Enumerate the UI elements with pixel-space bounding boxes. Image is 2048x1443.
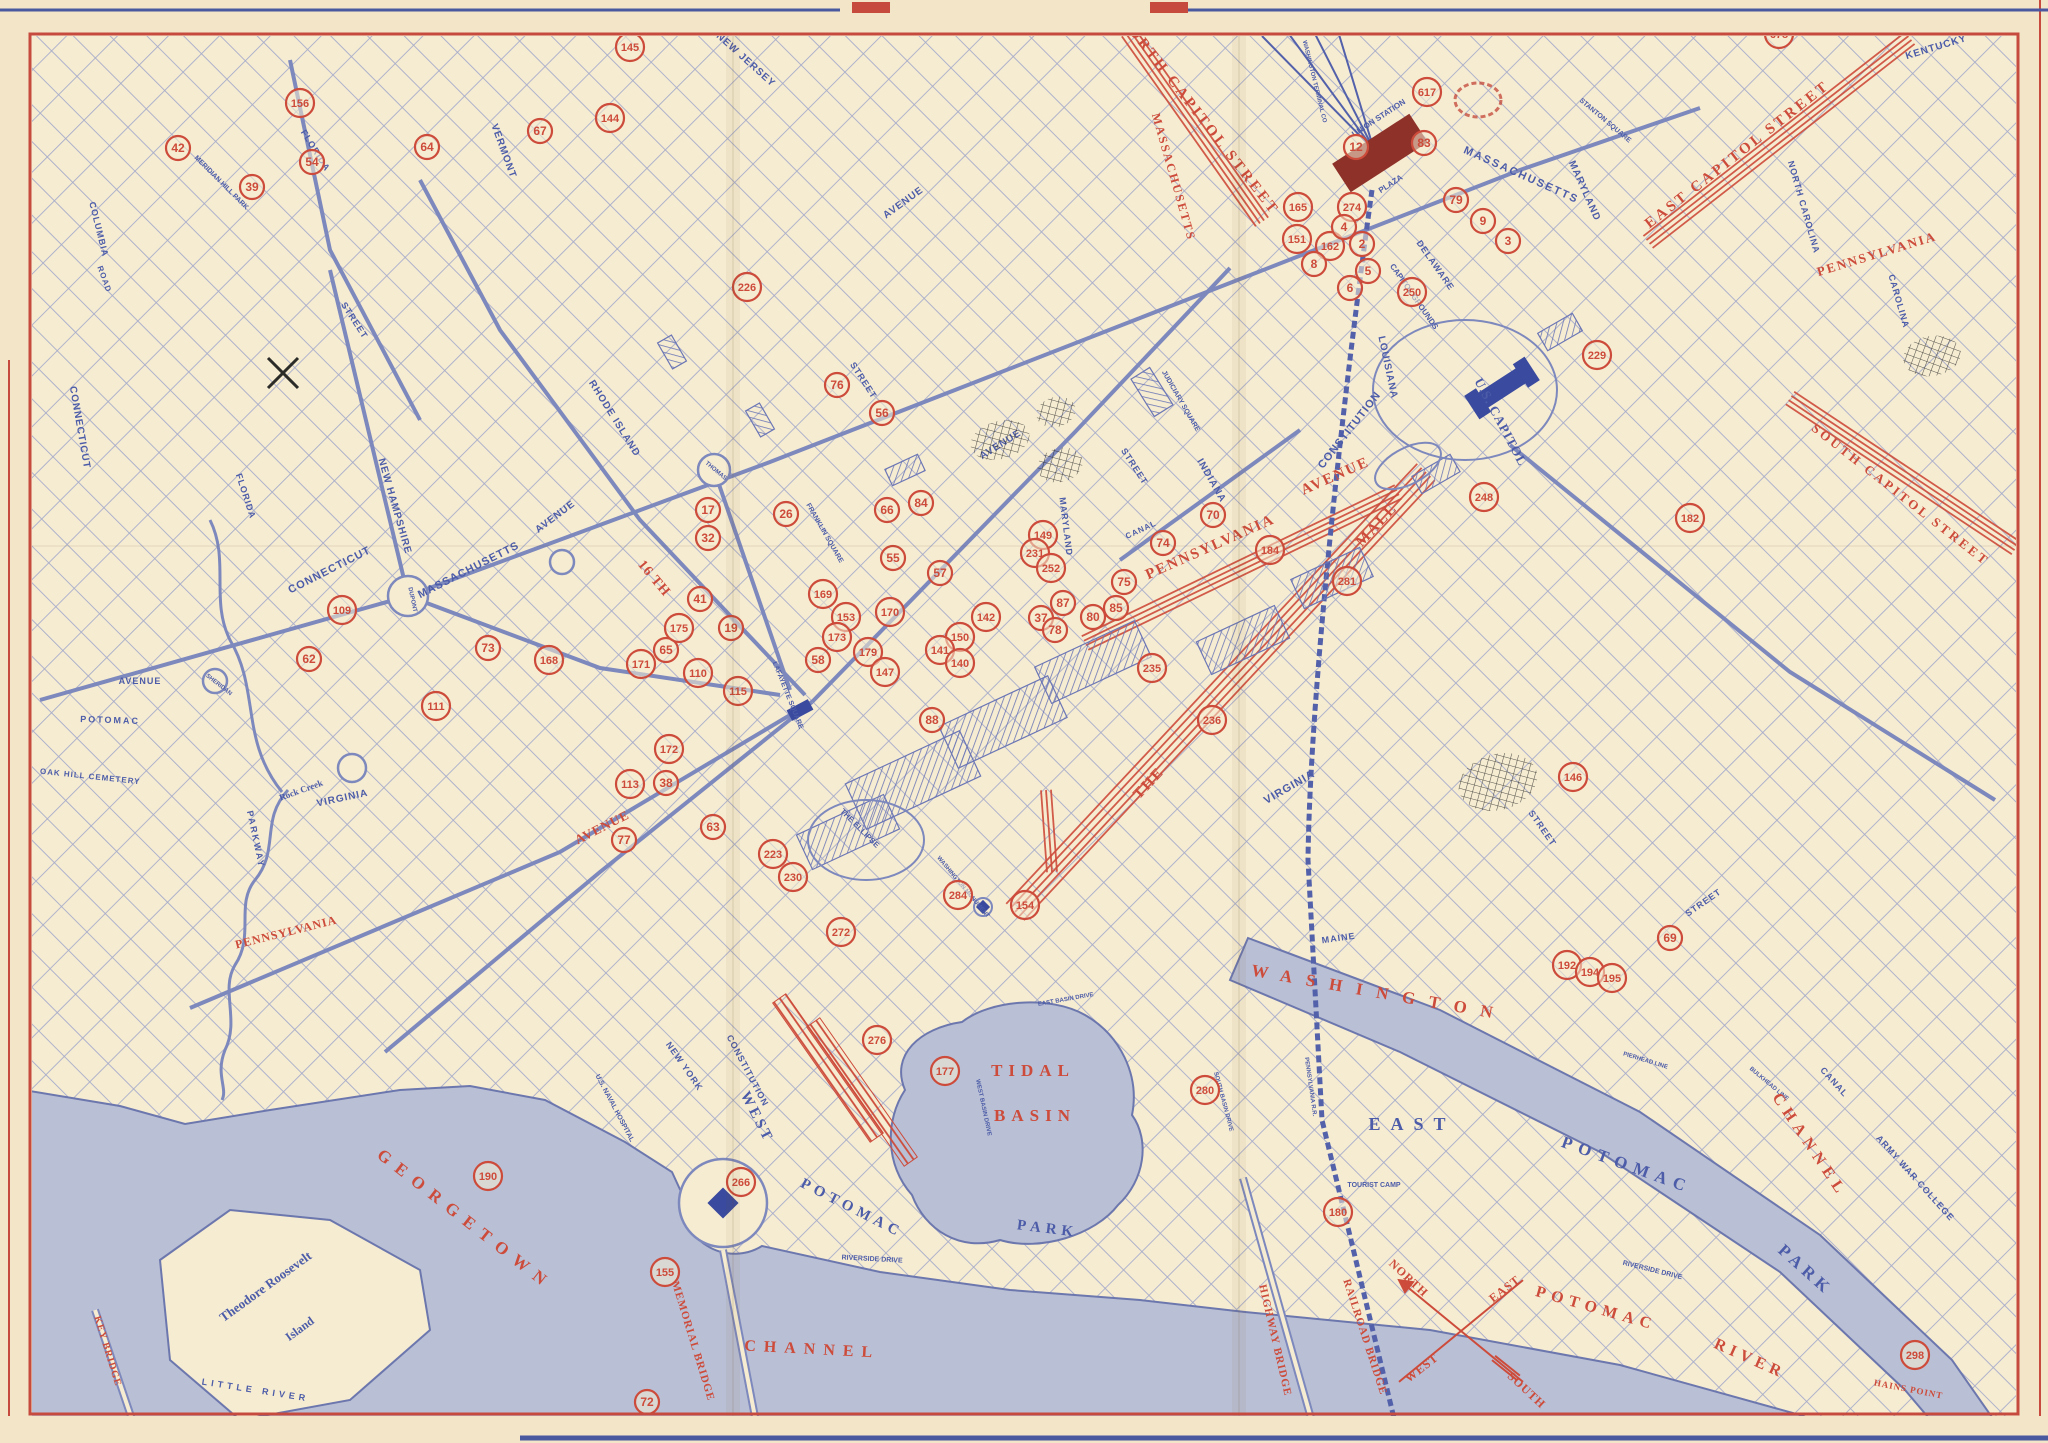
- poi-number: 147: [876, 667, 894, 679]
- header-red-box: [852, 2, 890, 13]
- poi-number: 276: [868, 1035, 886, 1047]
- poi-number: 74: [1156, 536, 1170, 550]
- poi-number: 250: [1403, 287, 1421, 299]
- poi-number: 144: [601, 113, 620, 125]
- poi-number: 195: [1603, 973, 1621, 985]
- scanned-map-page: WASHINGTON, D.C. U.S. CAPITOLCONSTITUTIO…: [0, 0, 2048, 1443]
- poi-number: 280: [1196, 1085, 1214, 1097]
- poi-number: 41: [693, 592, 707, 606]
- poi-number: 80: [1086, 610, 1100, 624]
- poi-number: 42: [171, 141, 185, 155]
- poi-number: 12: [1349, 140, 1363, 154]
- poi-number: 3: [1505, 234, 1512, 248]
- poi-number: 9: [1480, 214, 1487, 228]
- poi-number: 150: [951, 632, 969, 644]
- poi-number: 284: [949, 890, 968, 902]
- poi-number: 169: [814, 589, 832, 601]
- poi-number: 57: [933, 566, 947, 580]
- poi-number: 26: [779, 507, 793, 521]
- map-content: U.S. CAPITOLCONSTITUTIONLOUISIANADELAWAR…: [0, 0, 2048, 1443]
- poi-number: 141: [931, 645, 949, 657]
- poi-number: 87: [1056, 596, 1070, 610]
- poi-number: 223: [764, 849, 782, 861]
- poi-number: 146: [1564, 772, 1582, 784]
- poi-number: 281: [1338, 576, 1356, 588]
- poi-number: 145: [621, 42, 639, 54]
- poi-number: 39: [245, 180, 259, 194]
- poi-number: 140: [951, 658, 969, 670]
- poi-number: 76: [830, 378, 844, 392]
- poi-number: 8: [1311, 257, 1318, 271]
- poi-number: 84: [914, 496, 928, 510]
- poi-number: 64: [420, 140, 434, 154]
- poi-number: 229: [1588, 350, 1606, 362]
- poi-number: 62: [302, 652, 316, 666]
- poi-number: 154: [1016, 900, 1035, 912]
- poi-number: 4: [1341, 220, 1348, 234]
- map-label-red: BASIN: [994, 1106, 1076, 1125]
- poi-number: 55: [886, 551, 900, 565]
- poi-number: 230: [784, 872, 802, 884]
- traffic-circle: [550, 550, 574, 574]
- poi-number: 192: [1558, 960, 1576, 972]
- poi-number: 65: [659, 643, 673, 657]
- poi-number: 67: [533, 124, 547, 138]
- poi-number: 617: [1418, 87, 1436, 99]
- poi-number: 72: [640, 1395, 654, 1409]
- poi-number: 175: [670, 623, 688, 635]
- poi-number: 5: [1365, 264, 1372, 278]
- poi-number: 77: [617, 833, 631, 847]
- poi-number: 110: [689, 668, 707, 680]
- poi-number: 56: [875, 406, 889, 420]
- poi-number: 171: [632, 659, 650, 671]
- poi-number: 75: [1117, 575, 1131, 589]
- map-label-blue: TOURIST CAMP: [1347, 1182, 1400, 1189]
- map-label-red: TIDAL: [991, 1061, 1075, 1080]
- poi-number: 179: [859, 647, 877, 659]
- poi-number: 142: [977, 612, 995, 624]
- poi-number: 32: [701, 531, 715, 545]
- poi-number: 182: [1681, 513, 1699, 525]
- poi-number: 274: [1343, 202, 1362, 214]
- map-canvas: U.S. CAPITOLCONSTITUTIONLOUISIANADELAWAR…: [0, 0, 2048, 1443]
- poi-number: 70: [1206, 508, 1220, 522]
- poi-number: 38: [659, 776, 673, 790]
- poi-number: 88: [925, 713, 939, 727]
- poi-number: 252: [1042, 563, 1060, 575]
- map-label-blue: AVENUE: [119, 676, 162, 686]
- poi-number: 184: [1261, 545, 1280, 557]
- poi-number: 83: [1417, 136, 1431, 150]
- poi-number: 109: [333, 605, 351, 617]
- poi-number: 58: [811, 653, 825, 667]
- poi-number: 69: [1663, 931, 1677, 945]
- traffic-circle: [338, 754, 366, 782]
- poi-number: 165: [1289, 202, 1307, 214]
- poi-number: 155: [656, 1267, 674, 1279]
- map-label-blue: POTOMAC: [80, 714, 140, 726]
- poi-number: 79: [1449, 193, 1463, 207]
- poi-number: 298: [1906, 1350, 1924, 1362]
- poi-number: 170: [881, 607, 899, 619]
- poi-number: 17: [701, 503, 715, 517]
- poi-number: 113: [621, 779, 639, 791]
- poi-number: 111: [427, 701, 444, 713]
- poi-number: 151: [1288, 234, 1306, 246]
- poi-number: 172: [660, 744, 678, 756]
- poi-number: 63: [706, 820, 720, 834]
- poi-number: 2: [1359, 237, 1366, 251]
- poi-number: 168: [540, 655, 558, 667]
- poi-number: 162: [1321, 241, 1339, 253]
- poi-number: 272: [832, 927, 850, 939]
- poi-number: 180: [1329, 1207, 1347, 1219]
- poi-number: 73: [481, 641, 495, 655]
- poi-number: 173: [828, 632, 846, 644]
- poi-number: 156: [291, 98, 309, 110]
- poi-number: 248: [1475, 492, 1493, 504]
- header-red-box: [1150, 2, 1188, 13]
- poi-number: 236: [1203, 715, 1221, 727]
- poi-number: 6: [1347, 281, 1354, 295]
- poi-number: 54: [305, 155, 319, 169]
- poi-number: 177: [936, 1066, 954, 1078]
- poi-number: 78: [1048, 623, 1062, 637]
- poi-number: 85: [1109, 601, 1123, 615]
- poi-number: 235: [1143, 663, 1161, 675]
- poi-number: 190: [479, 1171, 497, 1183]
- poi-number: 226: [738, 282, 756, 294]
- poi-number: 66: [880, 503, 894, 517]
- map-label-blue: EAST: [1368, 1114, 1455, 1134]
